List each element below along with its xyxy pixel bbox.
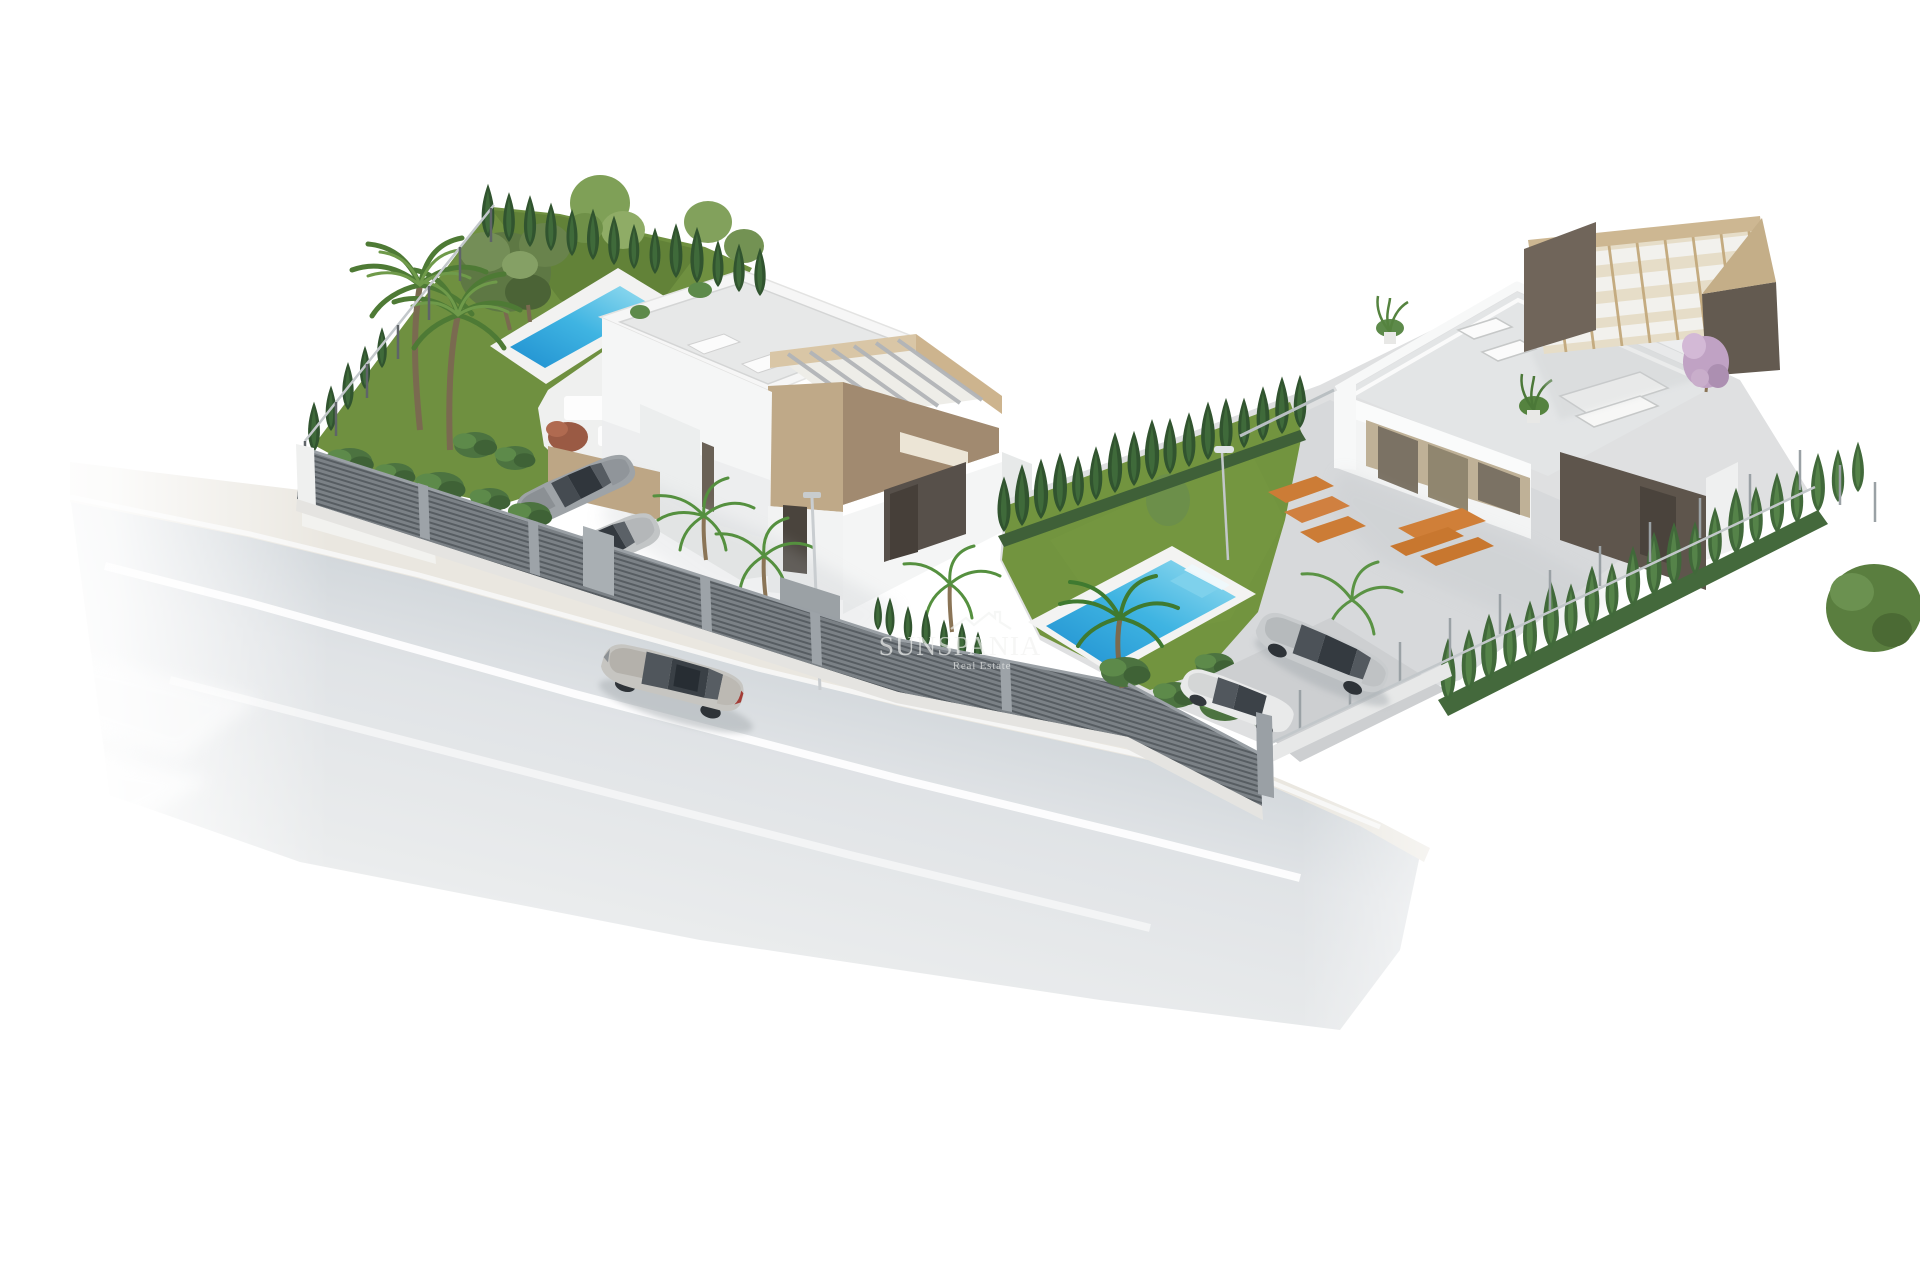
svg-text:Real Estate: Real Estate xyxy=(953,660,1012,672)
svg-text:SUNSPANIA: SUNSPANIA xyxy=(879,630,1042,661)
